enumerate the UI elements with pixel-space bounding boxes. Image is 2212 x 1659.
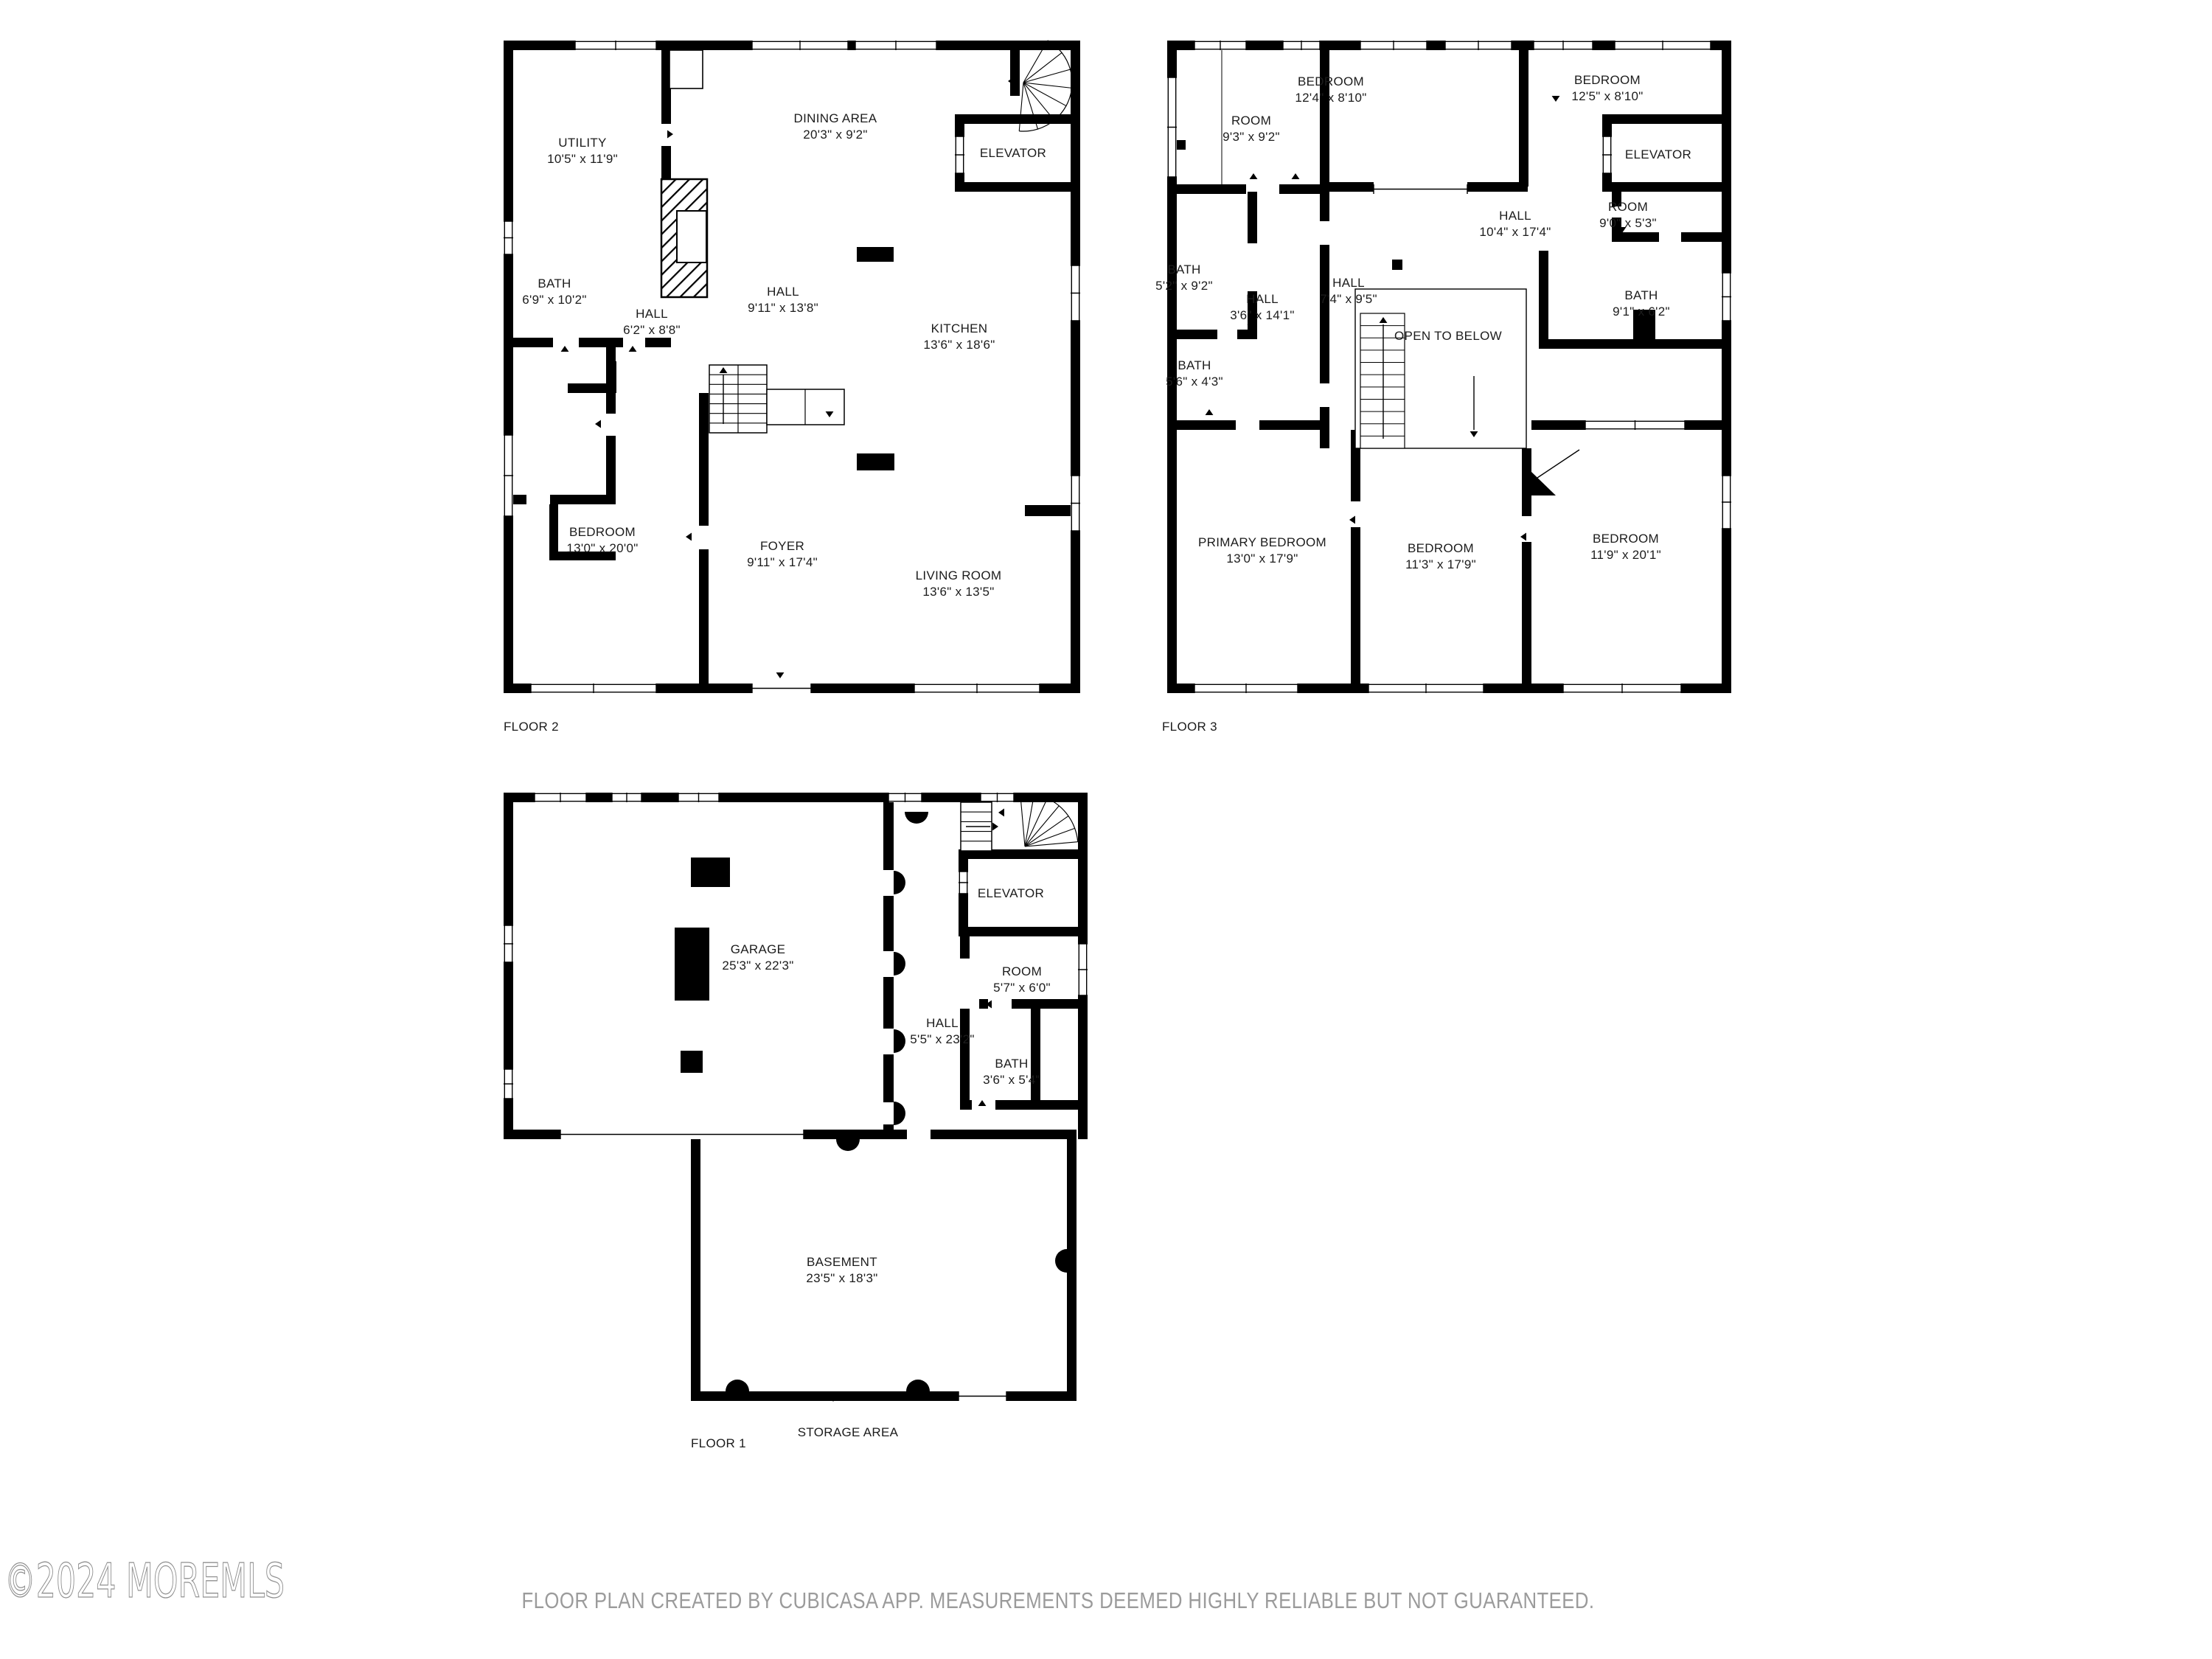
room-dims-f2-utility: 10'5" x 11'9" — [547, 152, 618, 166]
room-dims-f1-garage: 25'3" x 22'3" — [722, 959, 793, 973]
room-label-f3-open-below: OPEN TO BELOW — [1394, 329, 1502, 343]
room-label-f2-bedroom: BEDROOM — [569, 525, 636, 539]
room-dims-f1-room: 5'7" x 6'0" — [993, 981, 1051, 995]
room-label-f1-bath: BATH — [995, 1057, 1028, 1071]
room-dims-f2-hall-main: 9'11" x 13'8" — [748, 301, 818, 315]
room-label-f3-bath-left: BATH — [1167, 262, 1200, 276]
room-label-f3-primary: PRIMARY BEDROOM — [1198, 535, 1326, 549]
room-dims-f3-bath-right: 9'1" x 6'2" — [1613, 305, 1670, 319]
room-label-f2-living: LIVING ROOM — [916, 568, 1002, 582]
room-dims-f2-kitchen: 13'6" x 18'6" — [923, 338, 995, 352]
room-dims-f3-primary: 13'0" x 17'9" — [1226, 552, 1298, 566]
room-dims-f2-dining: 20'3" x 9'2" — [803, 128, 867, 142]
room-label-f3-hall-main: HALL — [1499, 209, 1531, 223]
floor3-caption: FLOOR 3 — [1162, 720, 1217, 734]
room-dims-f2-bath: 6'9" x 10'2" — [522, 293, 586, 307]
room-dims-f3-bedroom-mid: 12'4" x 8'10" — [1295, 91, 1366, 105]
room-dims-f3-bath-small: 5'6" x 4'3" — [1166, 375, 1223, 389]
floorplan-image: UTILITY 10'5" x 11'9" DINING AREA 20'3" … — [0, 0, 2212, 1659]
room-label-f3-bedroom-right: BEDROOM — [1574, 73, 1641, 87]
room-label-f1-room: ROOM — [1002, 964, 1042, 978]
room-label-f2-bath: BATH — [538, 276, 571, 291]
room-label-f1-basement: BASEMENT — [807, 1255, 877, 1269]
room-label-f1-hall: HALL — [926, 1016, 959, 1030]
room-dims-f3-bedroom-b: 11'3" x 17'9" — [1405, 557, 1476, 571]
room-dims-f3-room-small: 9'3" x 9'2" — [1222, 130, 1280, 144]
room-dims-f2-foyer: 9'11" x 17'4" — [747, 555, 818, 569]
room-label-f2-hall-main: HALL — [767, 285, 799, 299]
room-dims-f2-living: 13'6" x 13'5" — [922, 585, 994, 599]
room-dims-f1-bath: 3'6" x 5'4" — [983, 1073, 1040, 1087]
page-background — [0, 0, 2212, 1659]
room-dims-f3-hall-narrow: 3'6" x 14'1" — [1230, 308, 1294, 322]
room-label-f1-garage: GARAGE — [731, 942, 786, 956]
room-label-f2-utility: UTILITY — [558, 136, 606, 150]
mls-watermark: ©2024 MOREMLS — [4, 1554, 285, 1609]
room-label-f2-hall-small: HALL — [636, 307, 668, 321]
room-label-f1-elevator: ELEVATOR — [978, 886, 1044, 900]
room-dims-f3-bath-left: 5'2" x 9'2" — [1155, 279, 1213, 293]
storage-area-caption: STORAGE AREA — [798, 1425, 899, 1439]
room-dims-f1-basement: 23'5" x 18'3" — [806, 1271, 877, 1285]
floor1-caption: FLOOR 1 — [691, 1436, 746, 1450]
room-label-f2-foyer: FOYER — [760, 539, 804, 553]
room-dims-f3-hall-center: 7'4" x 9'5" — [1320, 292, 1377, 306]
room-dims-f2-hall-small: 6'2" x 8'8" — [623, 323, 681, 337]
room-label-f3-room-small: ROOM — [1231, 114, 1271, 128]
room-label-f2-elevator: ELEVATOR — [980, 146, 1046, 160]
room-dims-f3-room-right: 9'0" x 5'3" — [1599, 216, 1657, 230]
room-label-f3-bedroom-c: BEDROOM — [1593, 532, 1659, 546]
room-label-f2-kitchen: KITCHEN — [931, 321, 988, 335]
room-label-f3-bath-small: BATH — [1178, 358, 1211, 372]
room-dims-f3-hall-main: 10'4" x 17'4" — [1479, 225, 1551, 239]
room-label-f3-hall-narrow: HALL — [1246, 292, 1279, 306]
room-dims-f1-hall: 5'5" x 23'2" — [910, 1032, 974, 1046]
room-label-f3-bath-right: BATH — [1624, 288, 1658, 302]
room-label-f2-dining: DINING AREA — [794, 111, 877, 125]
floor2-caption: FLOOR 2 — [504, 720, 559, 734]
room-dims-f3-bedroom-right: 12'5" x 8'10" — [1571, 89, 1643, 103]
room-dims-f3-bedroom-c: 11'9" x 20'1" — [1590, 548, 1661, 562]
room-label-f3-bedroom-b: BEDROOM — [1408, 541, 1474, 555]
disclaimer-text: FLOOR PLAN CREATED BY CUBICASA APP. MEAS… — [522, 1587, 1595, 1613]
room-dims-f2-bedroom: 13'0" x 20'0" — [566, 541, 638, 555]
room-label-f3-elevator: ELEVATOR — [1625, 147, 1691, 161]
room-label-f3-hall-center: HALL — [1332, 276, 1365, 290]
room-label-f3-room-right: ROOM — [1608, 200, 1648, 214]
room-label-f3-bedroom-mid: BEDROOM — [1298, 74, 1364, 88]
